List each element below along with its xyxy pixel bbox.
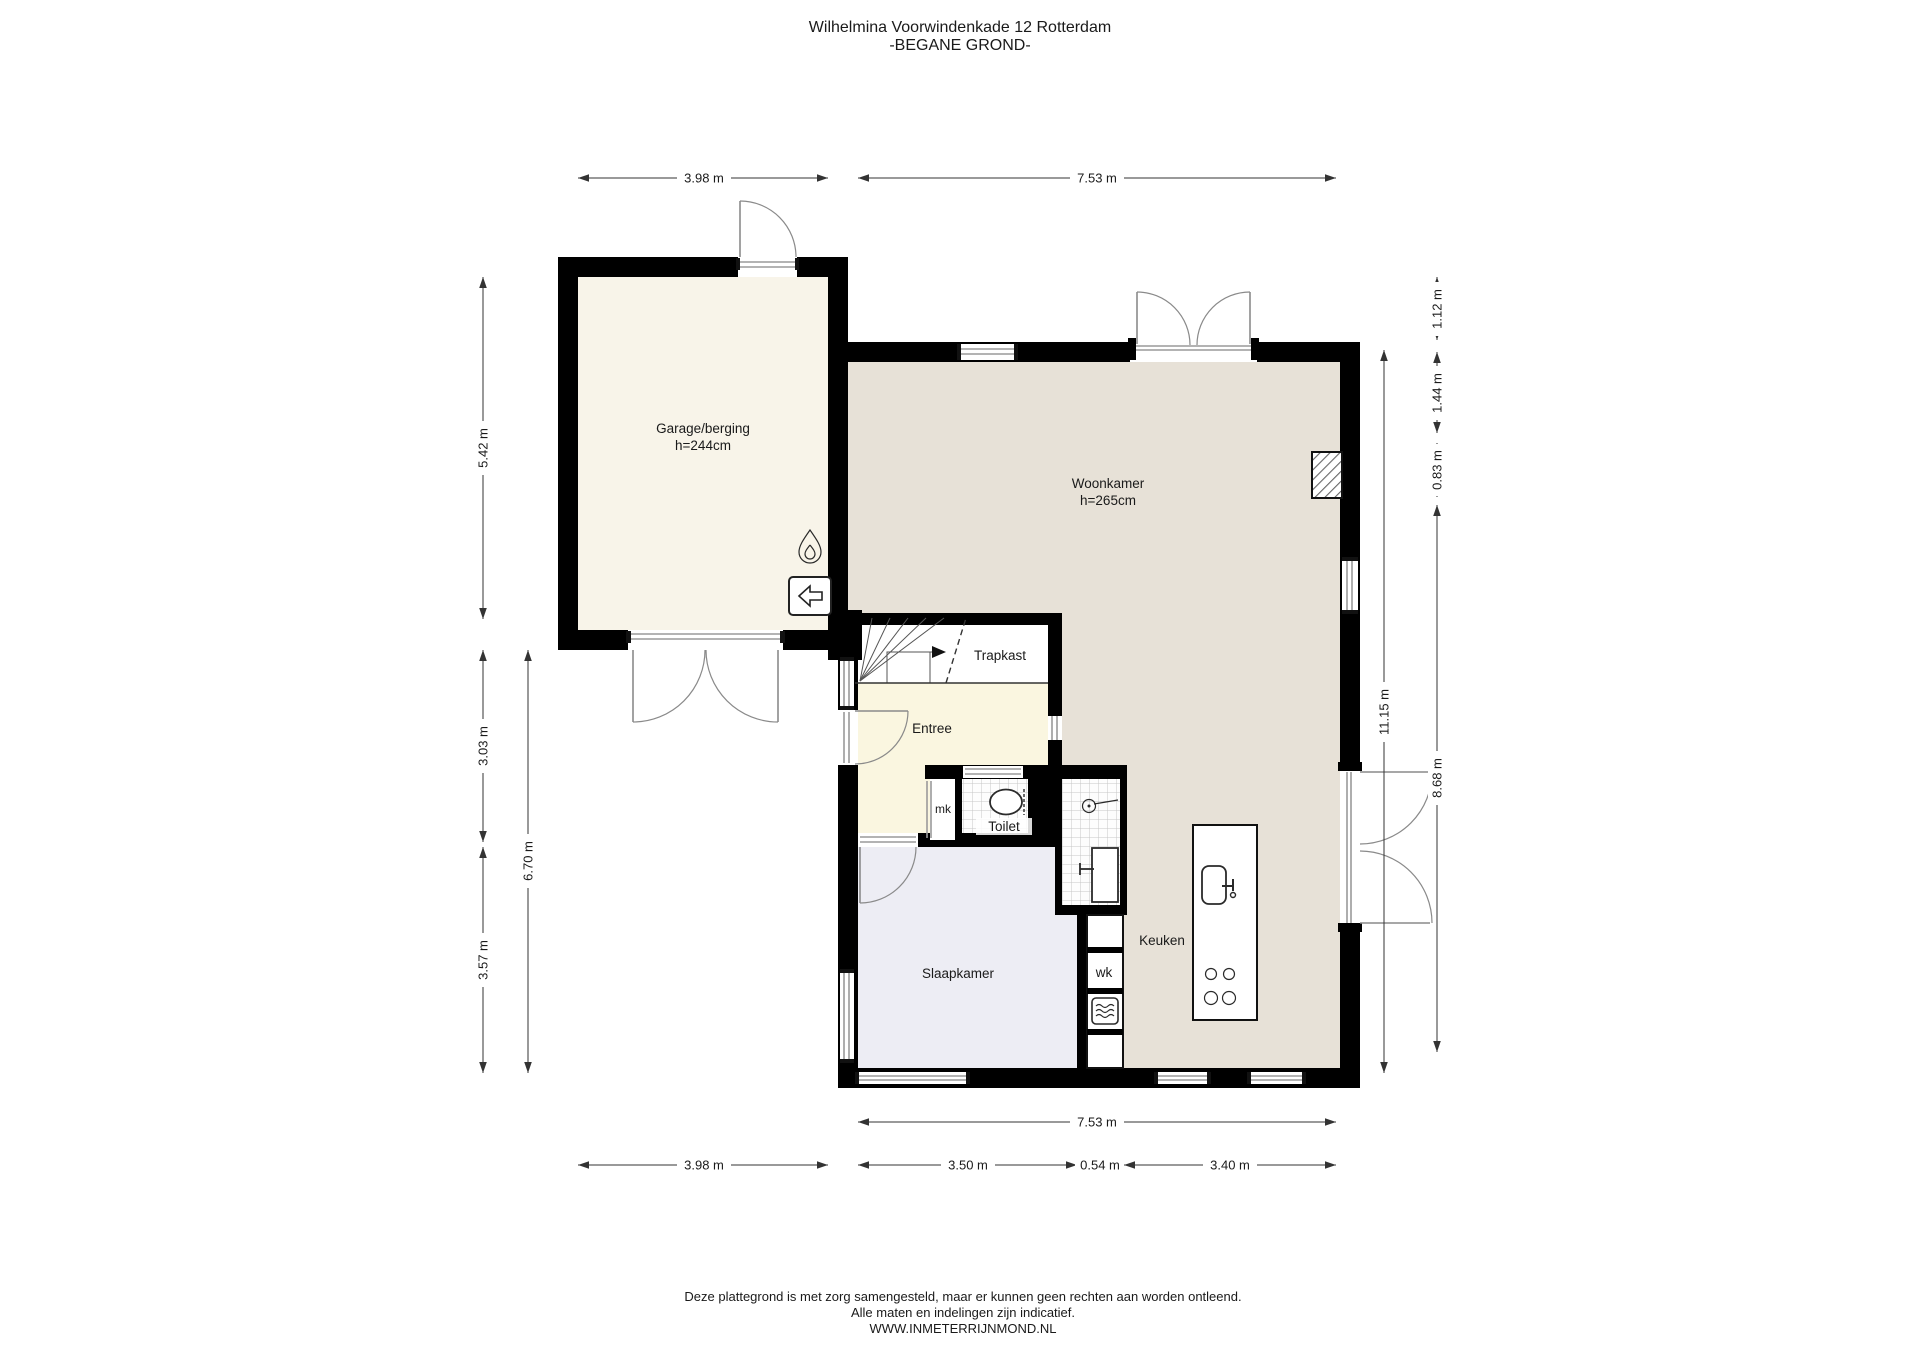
window-woonkamer-right [1342, 557, 1358, 614]
arrow-left-box-icon [789, 577, 831, 615]
dim-right-seg1: 1.12 m [1428, 277, 1446, 340]
svg-text:0.54 m: 0.54 m [1080, 1158, 1120, 1173]
french-doors-woonkamer-top [1128, 292, 1259, 362]
toilet-label-group: Toilet [976, 818, 1032, 835]
svg-text:5.42 m: 5.42 m [476, 428, 491, 468]
dim-bottom-wk: 0.54 m [1075, 1156, 1125, 1174]
svg-text:3.50 m: 3.50 m [948, 1158, 988, 1173]
footer-disclaimer-line1: Deze plattegrond is met zorg samengestel… [684, 1289, 1241, 1304]
chimney-flue [1312, 452, 1342, 498]
dim-left-entree: 3.03 m [474, 650, 492, 842]
entree-woonkamer-passage [1048, 716, 1062, 740]
svg-text:3.57 m: 3.57 m [476, 940, 491, 980]
french-doors-keuken-right [1338, 762, 1432, 932]
wk-label: wk [1095, 965, 1113, 980]
dim-top-house: 7.53 m [858, 169, 1336, 187]
svg-text:3.03 m: 3.03 m [476, 726, 491, 766]
dim-bottom-slaapkamer: 3.50 m [858, 1156, 1077, 1174]
window-keuken-bottom-left [1154, 1072, 1211, 1084]
entree-label: Entree [912, 721, 952, 736]
svg-text:3.98 m: 3.98 m [684, 1158, 724, 1173]
trapkast-label: Trapkast [974, 648, 1026, 663]
dim-bottom-garage: 3.98 m [578, 1156, 828, 1174]
page-subtitle: -BEGANE GROND- [889, 37, 1030, 54]
dim-bottom-keuken: 3.40 m [1124, 1156, 1336, 1174]
kitchen-island [1193, 825, 1257, 1020]
dim-right-seg4: 8.68 m [1428, 505, 1446, 1052]
woonkamer-label: Woonkamer [1072, 476, 1145, 491]
garage-double-door [626, 630, 785, 722]
slaapkamer-floor [858, 847, 1077, 1068]
window-slaapkamer-left [840, 969, 854, 1063]
svg-text:1.44 m: 1.44 m [1430, 373, 1445, 413]
floorplan-page: Wilhelmina Voorwindenkade 12 Rotterdam -… [0, 0, 1920, 1358]
dim-left-total: 6.70 m [519, 650, 537, 1073]
dim-bottom-house: 7.53 m [858, 1113, 1336, 1131]
keuken-label: Keuken [1139, 933, 1185, 948]
page-title: Wilhelmina Voorwindenkade 12 Rotterdam [809, 19, 1111, 36]
wk-cabinets [1087, 915, 1123, 1068]
svg-text:3.40 m: 3.40 m [1210, 1158, 1250, 1173]
svg-text:7.53 m: 7.53 m [1077, 171, 1117, 186]
svg-text:3.98 m: 3.98 m [684, 171, 724, 186]
garage-entry-door [736, 201, 799, 277]
toilet-door [963, 766, 1023, 778]
footer-website: WWW.INMETERRIJNMOND.NL [869, 1321, 1056, 1336]
svg-text:0.83 m: 0.83 m [1430, 450, 1445, 490]
dim-right-seg3: 0.83 m [1428, 443, 1446, 497]
svg-text:7.53 m: 7.53 m [1077, 1115, 1117, 1130]
window-entree-left [840, 657, 854, 710]
garage-label: Garage/berging [656, 421, 750, 436]
svg-text:11.15 m: 11.15 m [1377, 689, 1392, 735]
window-slaapkamer-bottom [855, 1072, 970, 1084]
woonkamer-height-label: h=265cm [1080, 493, 1136, 508]
svg-text:1.12 m: 1.12 m [1430, 289, 1445, 329]
floorplan-drawing: Wilhelmina Voorwindenkade 12 Rotterdam -… [0, 0, 1920, 1358]
svg-text:8.68 m: 8.68 m [1430, 758, 1445, 798]
svg-text:6.70 m: 6.70 m [521, 841, 536, 881]
window-keuken-bottom-right [1247, 1072, 1306, 1084]
garage-height-label: h=244cm [675, 438, 731, 453]
toilet-label: Toilet [988, 819, 1020, 834]
microwave-icon [1092, 998, 1118, 1024]
dim-right-seg2: 1.44 m [1428, 352, 1446, 433]
dim-top-garage: 3.98 m [578, 169, 828, 187]
mk-label: mk [935, 802, 952, 816]
slaapkamer-label: Slaapkamer [922, 966, 995, 981]
footer-disclaimer-line2: Alle maten en indelingen zijn indicatief… [851, 1305, 1075, 1320]
window-woonkamer-top [957, 344, 1018, 360]
dim-left-slaapkamer: 3.57 m [474, 847, 492, 1073]
dim-right-inner: 11.15 m [1375, 350, 1393, 1073]
dim-left-garage: 5.42 m [474, 277, 492, 619]
